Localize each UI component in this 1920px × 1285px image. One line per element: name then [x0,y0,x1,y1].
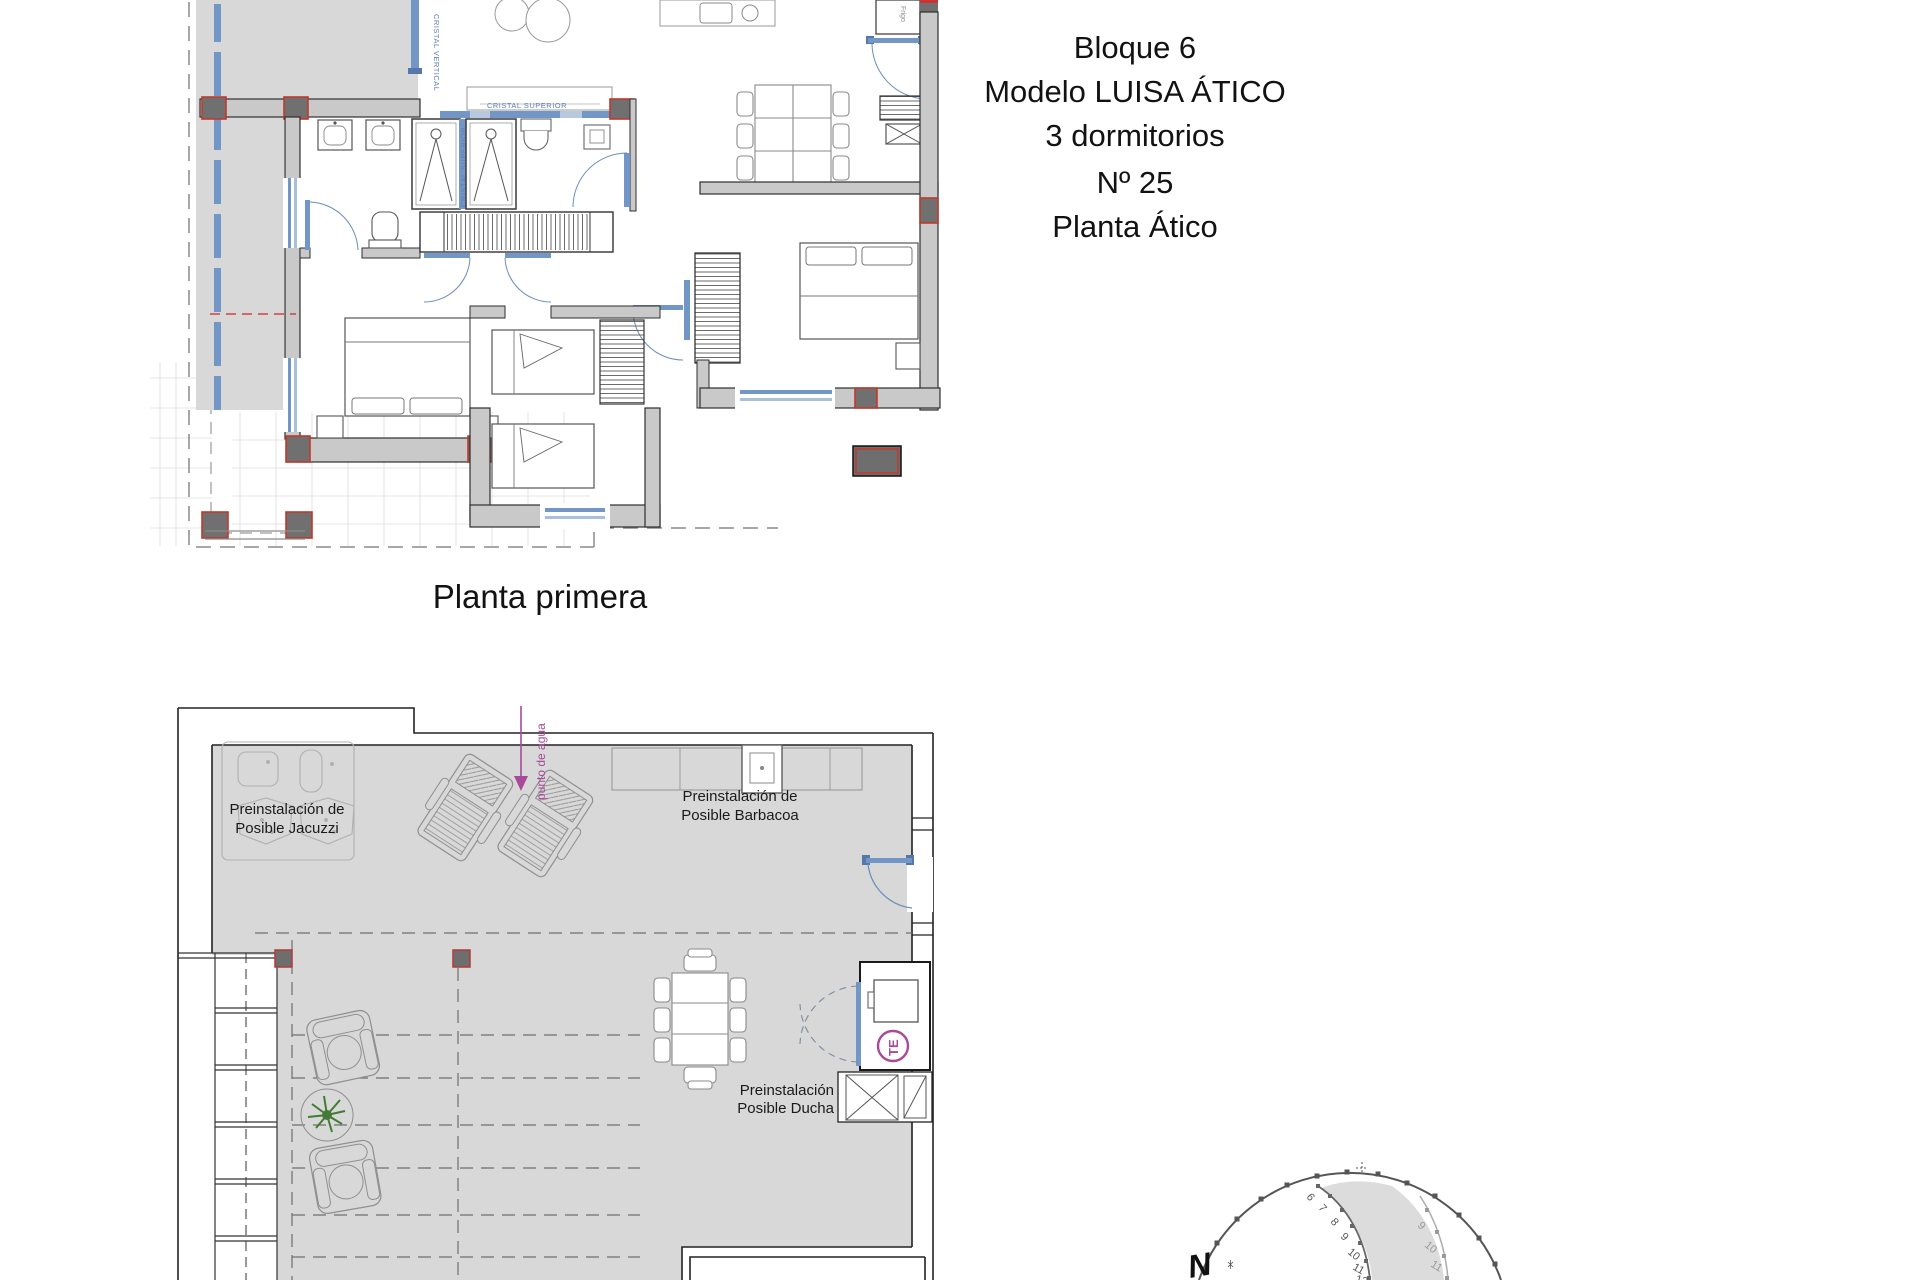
terrace-west [196,100,284,410]
hour-8: 8 [1328,1216,1341,1229]
hour-7: 7 [1316,1202,1329,1214]
title-modelo: Modelo LUISA ÁTICO [925,70,1345,114]
appliance [874,980,918,1022]
hour-10: 10 [1345,1246,1362,1263]
entry-door-swing [872,44,925,99]
sink [318,120,400,150]
kitchen-living [495,0,775,42]
cristal-vertical-label: CRISTAL VERTICAL [432,14,441,91]
fridge [876,0,920,34]
barbacoa-label-2: Posible Barbacoa [681,807,799,824]
column [275,950,292,967]
door-swing [573,153,627,207]
master-closet [695,253,740,363]
terrace-top [196,0,418,100]
barbacoa-label-1: Preinstalación de [682,788,797,805]
window-west-1 [283,178,302,248]
water-point-label: punto de agua [534,723,548,800]
column [453,950,470,967]
fridge-label: Frigo [899,6,906,22]
title-dormitorios: 3 dormitorios [925,114,1345,158]
column [202,512,228,538]
title-block: Bloque 6 Modelo LUISA ÁTICO 3 dormitorio… [925,26,1345,249]
shower-2 [466,119,516,209]
armchair [305,1009,381,1087]
wall-top [200,99,420,117]
wall-bath2-east [630,99,636,211]
dining-table-primera [737,85,849,185]
sun-band [1322,1181,1444,1280]
column [284,97,308,119]
plan-primera-label: Planta primera [420,578,660,616]
sun-path-diagram: 6 7 8 9 10 11 12 9 10 11 N [1185,1162,1501,1280]
wall [700,182,938,194]
column-symbol [853,446,901,476]
wall-west [470,408,490,520]
floor-plan-primera: CRISTAL VERTICAL [150,0,940,547]
title-bloque: Bloque 6 [925,26,1345,70]
nightstand [317,416,343,438]
hall-wardrobe [420,212,613,252]
ducha-label-2: Posible Ducha [737,1100,834,1117]
jacuzzi-label-1: Preinstalación de [229,801,344,818]
door-leaf [624,153,630,207]
cristal-vertical-glazing [411,0,419,74]
bed-single [492,424,594,488]
column [286,512,312,538]
cristal-superior-band [440,111,612,118]
toilet [372,212,398,242]
hour-12: 12 [1354,1273,1369,1280]
entry-door-leaf [868,38,924,43]
plan-sheet: CRISTAL VERTICAL [0,0,1920,1280]
cristal-superior-band-label: CRISTAL SUPERIOR [487,101,567,110]
hour-6: 6 [1304,1191,1317,1203]
north-label: N [1185,1245,1215,1280]
bathroom-1 [300,120,420,258]
porch [202,512,312,539]
te-label: TE [886,1039,901,1056]
wall-east [645,408,660,527]
stairs [178,953,277,1280]
door-leaf [305,200,310,250]
ducha-area [838,1072,932,1122]
column [286,436,310,462]
door-leaf [866,858,912,863]
jacuzzi-label-2: Posible Jacuzzi [235,820,338,837]
ducha-label-1: Preinstalación [740,1082,834,1099]
bed-single [492,330,594,394]
wall-south [296,438,492,462]
bedroom-1 [286,318,498,462]
floor-plan-atico: Preinstalación de Posible Jacuzzi punto … [178,706,933,1280]
title-numero: Nº 25 [925,161,1345,205]
title-planta: Planta Ático [925,205,1345,249]
shower-1 [412,119,460,209]
window-west-2 [283,358,302,432]
column [202,97,226,119]
column [855,388,877,408]
closet [600,320,644,404]
door-swing [310,202,358,250]
north-star-icon [1228,1260,1233,1269]
nightstand [896,343,920,369]
hour-9: 9 [1338,1231,1351,1244]
bathroom-2 [521,119,630,207]
armchair [308,1139,382,1215]
